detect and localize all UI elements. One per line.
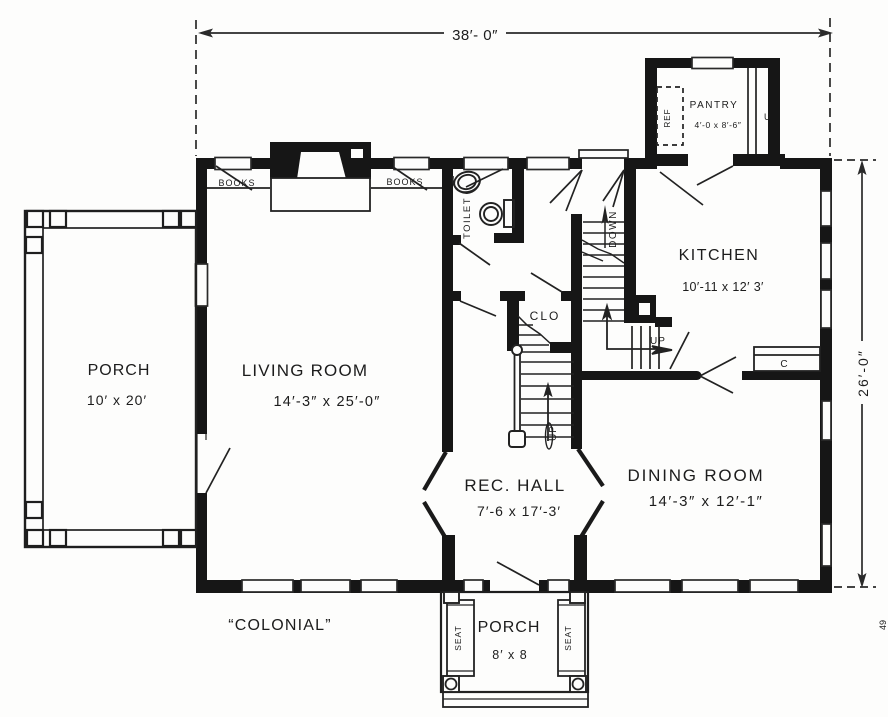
svg-text:SEAT: SEAT: [453, 625, 463, 651]
svg-text:REC. HALL: REC. HALL: [464, 476, 565, 495]
svg-text:UP: UP: [548, 425, 559, 441]
svg-text:7′-6 x 17′-3′: 7′-6 x 17′-3′: [477, 503, 561, 519]
svg-text:DINING ROOM: DINING ROOM: [628, 466, 765, 485]
svg-text:4′-0 x 8′-6″: 4′-0 x 8′-6″: [695, 120, 742, 130]
svg-text:PANTRY: PANTRY: [690, 100, 739, 111]
svg-text:LIVING ROOM: LIVING ROOM: [242, 361, 369, 380]
svg-text:DOWN: DOWN: [608, 210, 619, 248]
svg-text:8′ x 8: 8′ x 8: [492, 648, 527, 662]
svg-text:“COLONIAL”: “COLONIAL”: [228, 617, 332, 634]
svg-text:C: C: [780, 359, 787, 370]
svg-text:PORCH: PORCH: [88, 362, 151, 379]
svg-text:10′-11 x 12′ 3′: 10′-11 x 12′ 3′: [682, 280, 764, 294]
svg-text:26′-0″: 26′-0″: [855, 349, 871, 397]
svg-text:TOILET: TOILET: [462, 197, 473, 239]
svg-text:BOOKS: BOOKS: [386, 177, 423, 187]
svg-text:CLO: CLO: [530, 309, 561, 323]
svg-text:14′-3″ x 12′-1″: 14′-3″ x 12′-1″: [649, 493, 764, 510]
svg-text:14′-3″ x 25′-0″: 14′-3″ x 25′-0″: [273, 394, 380, 410]
svg-text:38′- 0″: 38′- 0″: [452, 27, 498, 44]
svg-text:PORCH: PORCH: [478, 619, 541, 636]
svg-text:SEAT: SEAT: [563, 625, 573, 651]
svg-text:10′ x 20′: 10′ x 20′: [87, 392, 147, 408]
svg-text:U: U: [764, 112, 771, 122]
svg-text:REF: REF: [663, 109, 672, 128]
svg-text:UP: UP: [650, 336, 666, 347]
svg-text:BOOKS: BOOKS: [218, 178, 255, 188]
svg-text:KITCHEN: KITCHEN: [679, 247, 760, 264]
svg-text:49: 49: [878, 620, 888, 630]
